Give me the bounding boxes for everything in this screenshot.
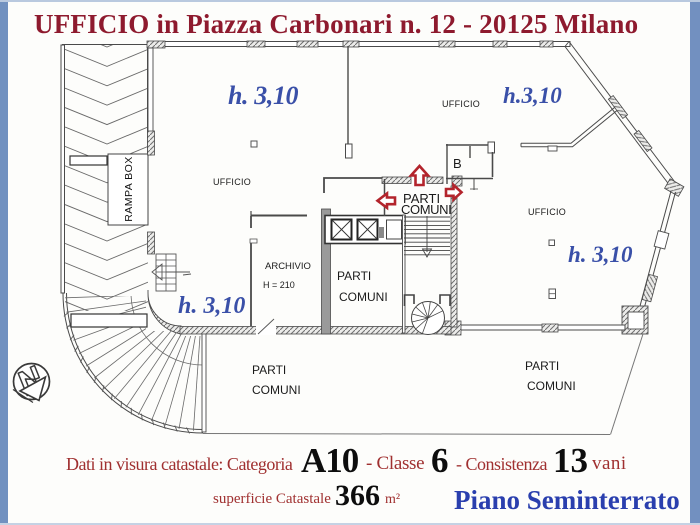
svg-text:ARCHIVIO: ARCHIVIO — [265, 261, 311, 272]
svg-text:H = 210: H = 210 — [263, 280, 295, 290]
svg-text:PARTI: PARTI — [252, 363, 286, 377]
svg-text:RAMPA BOX: RAMPA BOX — [123, 156, 135, 222]
svg-text:h.3,10: h.3,10 — [503, 83, 562, 108]
svg-text:COMUNI: COMUNI — [252, 383, 301, 397]
svg-text:COMUNI: COMUNI — [401, 202, 451, 217]
svg-text:COMUNI: COMUNI — [527, 379, 576, 393]
svg-text:h. 3,10: h. 3,10 — [178, 293, 245, 319]
svg-text:h. 3,10: h. 3,10 — [228, 81, 299, 110]
svg-text:UFFICIO: UFFICIO — [442, 99, 480, 109]
svg-text:UFFICIO: UFFICIO — [213, 177, 251, 187]
svg-text:h. 3,10: h. 3,10 — [568, 242, 633, 267]
svg-text:UFFICIO: UFFICIO — [528, 207, 566, 217]
svg-text:B: B — [453, 156, 462, 171]
svg-text:COMUNI: COMUNI — [339, 290, 388, 304]
svg-text:PARTI: PARTI — [337, 269, 371, 283]
svg-text:PARTI: PARTI — [525, 359, 559, 373]
